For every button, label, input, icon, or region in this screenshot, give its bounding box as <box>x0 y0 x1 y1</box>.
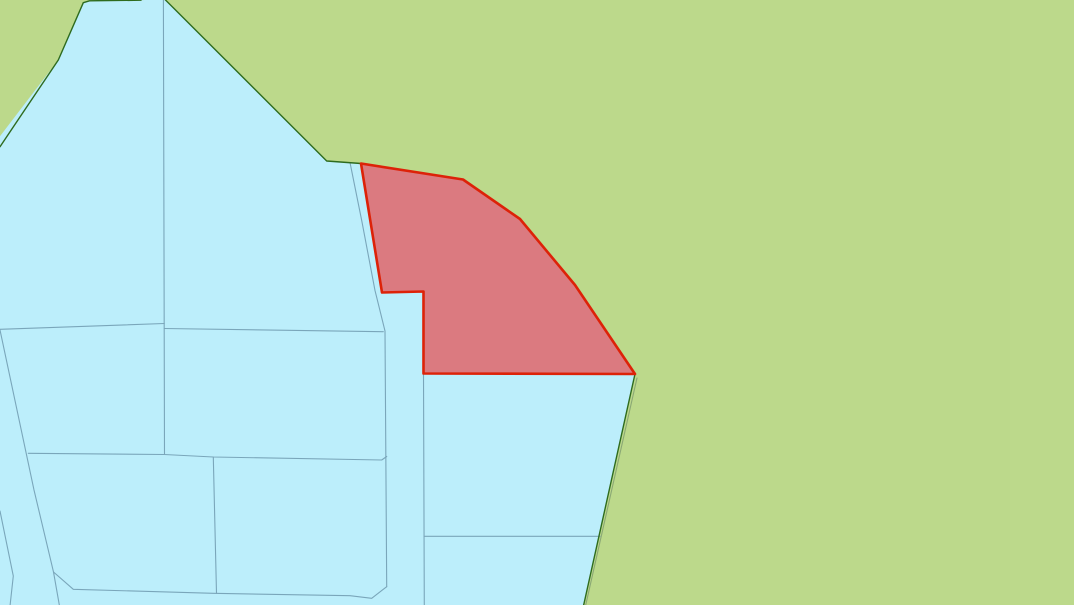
map-viewport[interactable] <box>0 0 1074 605</box>
map-canvas[interactable] <box>0 0 1074 605</box>
